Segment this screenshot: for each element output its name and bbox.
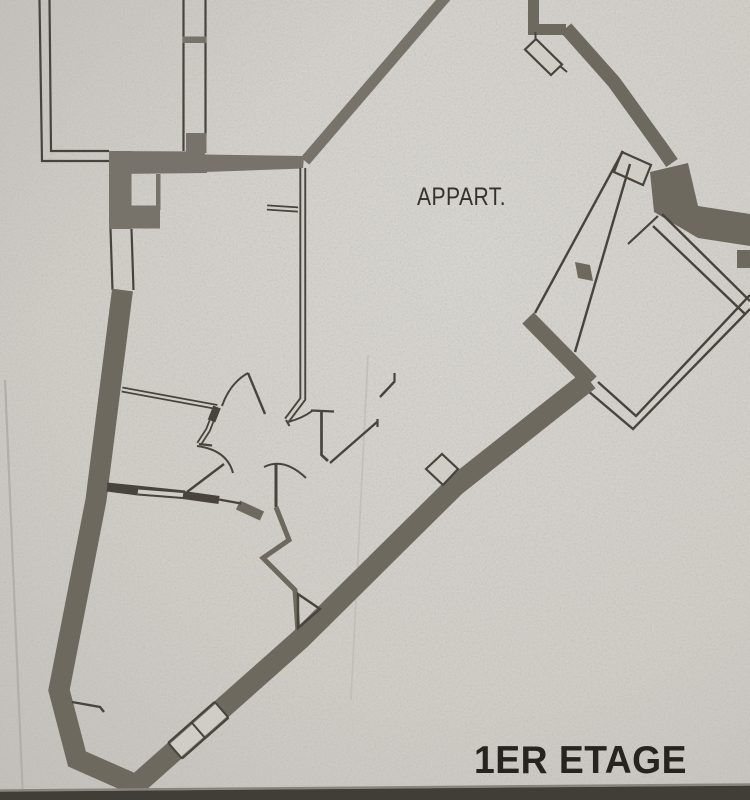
svg-text:APPART.: APPART. (417, 183, 506, 211)
svg-text:1ER ETAGE: 1ER ETAGE (474, 739, 687, 782)
